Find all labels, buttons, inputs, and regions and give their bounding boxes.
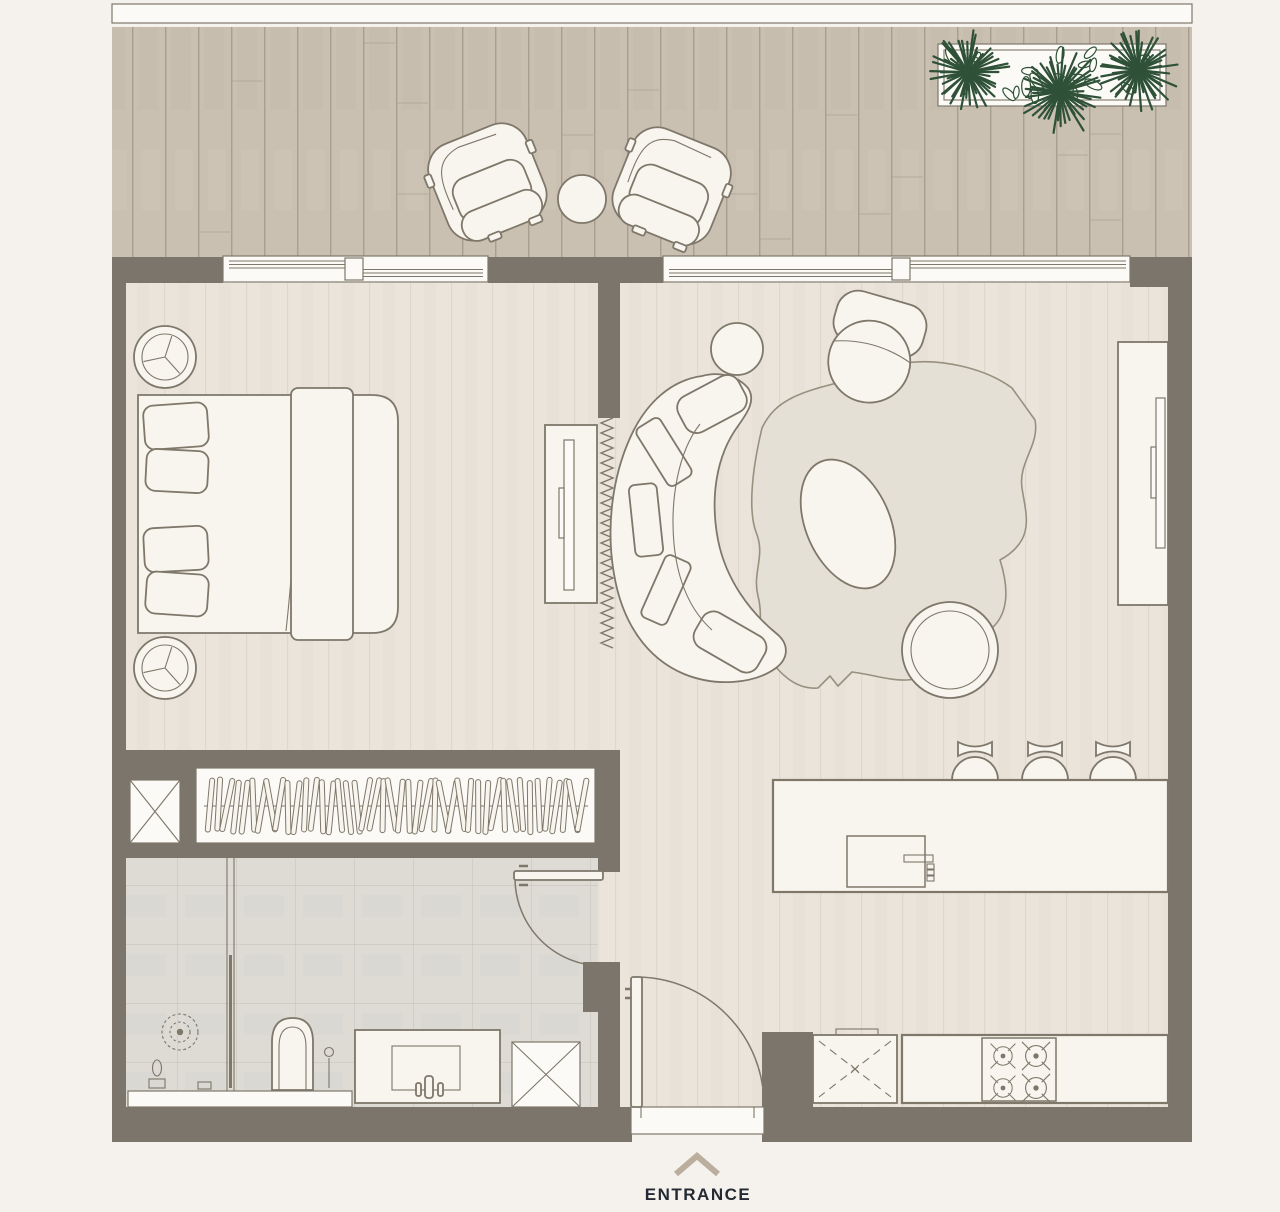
bedroom-dresser-tv [545,425,597,603]
shower-curb [128,1091,352,1107]
vanity-with-sink [355,1030,500,1103]
round-pouf [902,602,998,698]
balcony [112,4,1192,260]
living-tv-console [1118,342,1168,605]
wardrobe [130,768,595,843]
living-sliding-window [663,256,1130,282]
toilet-icon [272,1018,313,1090]
nightstand-bottom [134,637,196,699]
entrance-label: ENTRANCE [645,1185,751,1204]
balcony-railing [112,4,1192,23]
balcony-side-table [558,175,606,223]
floor-plan-canvas: ENTRANCE [0,0,1280,1212]
nightstand-top [134,326,196,388]
service-shaft-bathroom [512,1042,580,1107]
living-side-table [711,323,763,375]
floor-plan: ENTRANCE [0,0,1280,1212]
washer-appliance [813,1029,897,1103]
kitchen-island [773,780,1168,892]
entrance-threshold [631,1107,764,1134]
bedroom-sliding-window [223,256,488,282]
bed-runner [291,388,353,640]
